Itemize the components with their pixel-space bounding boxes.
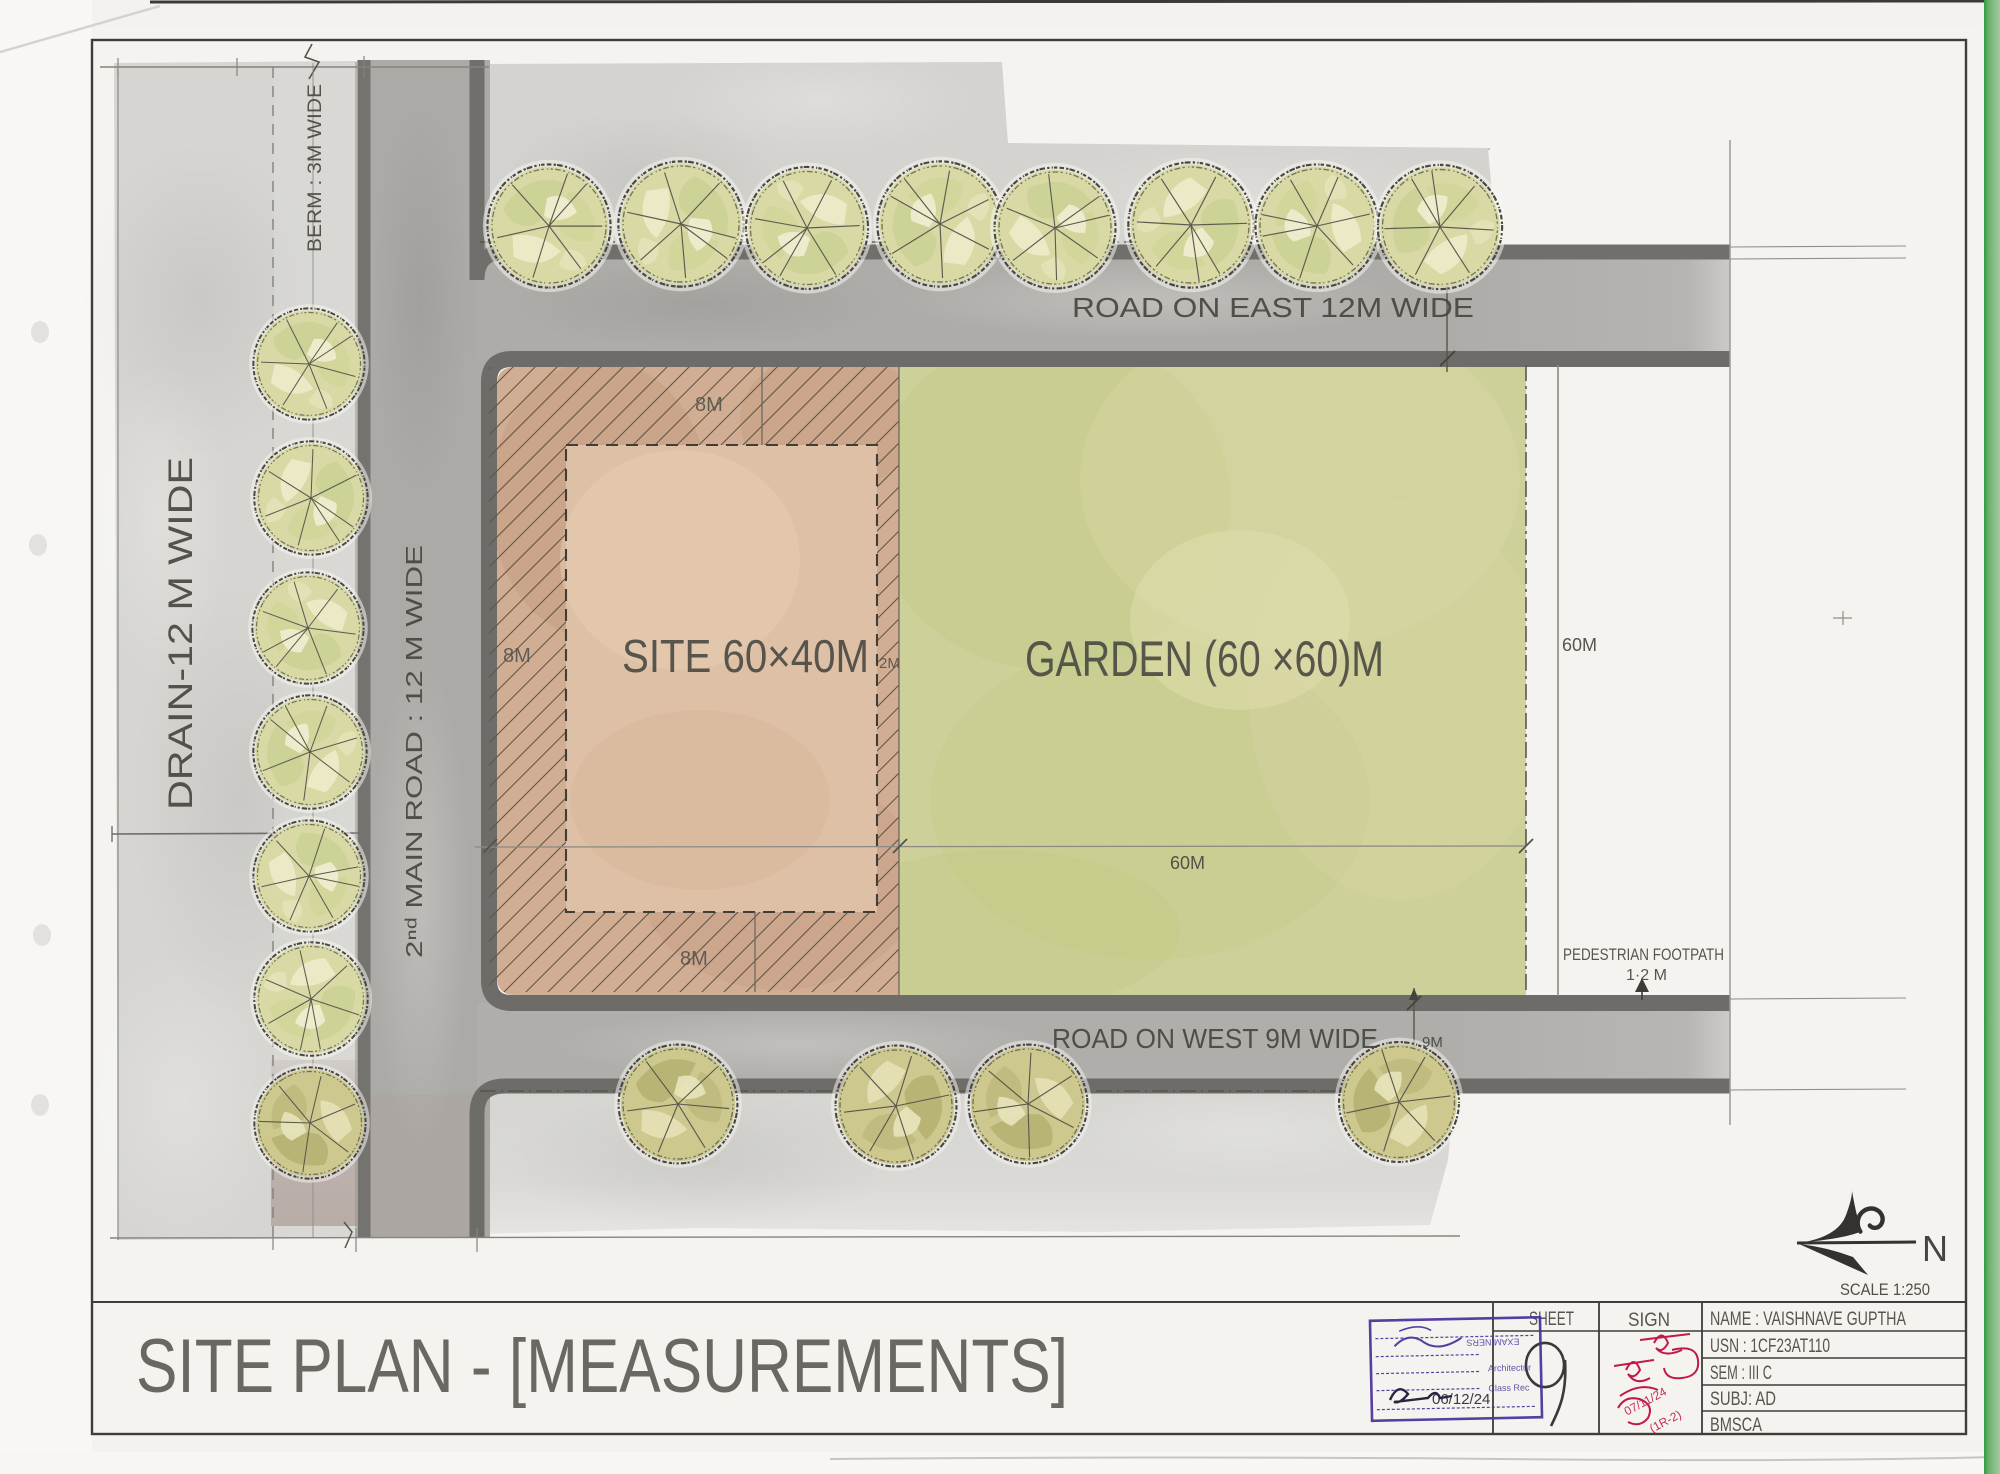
svg-text:SCALE 1:250: SCALE 1:250 xyxy=(1840,1280,1930,1299)
svg-text:60M: 60M xyxy=(1170,853,1205,873)
svg-text:ROAD ON WEST 9M WIDE: ROAD ON WEST 9M WIDE xyxy=(1052,1023,1378,1054)
svg-text:BMSCA: BMSCA xyxy=(1710,1415,1762,1436)
svg-text:2ⁿᵈ MAIN ROAD : 12 M WIDE: 2ⁿᵈ MAIN ROAD : 12 M WIDE xyxy=(401,545,427,958)
svg-text:Class Rec: Class Rec xyxy=(1488,1382,1530,1393)
svg-text:2M: 2M xyxy=(879,655,900,672)
svg-text:1·2 M: 1·2 M xyxy=(1626,967,1667,984)
svg-text:N: N xyxy=(1922,1228,1948,1269)
svg-text:SIGN: SIGN xyxy=(1628,1310,1670,1331)
svg-text:06/12/24: 06/12/24 xyxy=(1432,1391,1490,1408)
svg-text:NAME : VAISHNAVE GUPTHA: NAME : VAISHNAVE GUPTHA xyxy=(1710,1309,1906,1330)
svg-text:8M: 8M xyxy=(680,948,708,970)
svg-text:SITE 60×40M: SITE 60×40M xyxy=(622,630,869,682)
svg-text:SHEET: SHEET xyxy=(1529,1309,1574,1330)
svg-text:BERM : 3M WIDE: BERM : 3M WIDE xyxy=(305,84,326,252)
svg-text:SUBJ: AD: SUBJ: AD xyxy=(1710,1389,1776,1410)
svg-text:9M: 9M xyxy=(1422,1034,1443,1051)
svg-text:PEDESTRIAN FOOTPATH: PEDESTRIAN FOOTPATH xyxy=(1563,945,1724,964)
svg-text:8M: 8M xyxy=(695,394,723,416)
svg-text:SEM : III C: SEM : III C xyxy=(1710,1363,1772,1384)
svg-text:USN : 1CF23AT110: USN : 1CF23AT110 xyxy=(1710,1336,1830,1357)
svg-text:EXAMINERS: EXAMINERS xyxy=(1466,1337,1519,1348)
svg-text:SITE PLAN - [MEASUREMENTS]: SITE PLAN - [MEASUREMENTS] xyxy=(136,1324,1068,1409)
svg-text:Architectur: Architectur xyxy=(1488,1362,1531,1373)
svg-text:60M: 60M xyxy=(1562,635,1597,655)
svg-text:GARDEN (60 ×60)M: GARDEN (60 ×60)M xyxy=(1025,631,1384,687)
svg-text:ROAD ON EAST 12M WIDE: ROAD ON EAST 12M WIDE xyxy=(1072,292,1474,323)
svg-text:DRAIN-12 M WIDE: DRAIN-12 M WIDE xyxy=(162,457,200,810)
svg-text:8M: 8M xyxy=(503,645,531,667)
